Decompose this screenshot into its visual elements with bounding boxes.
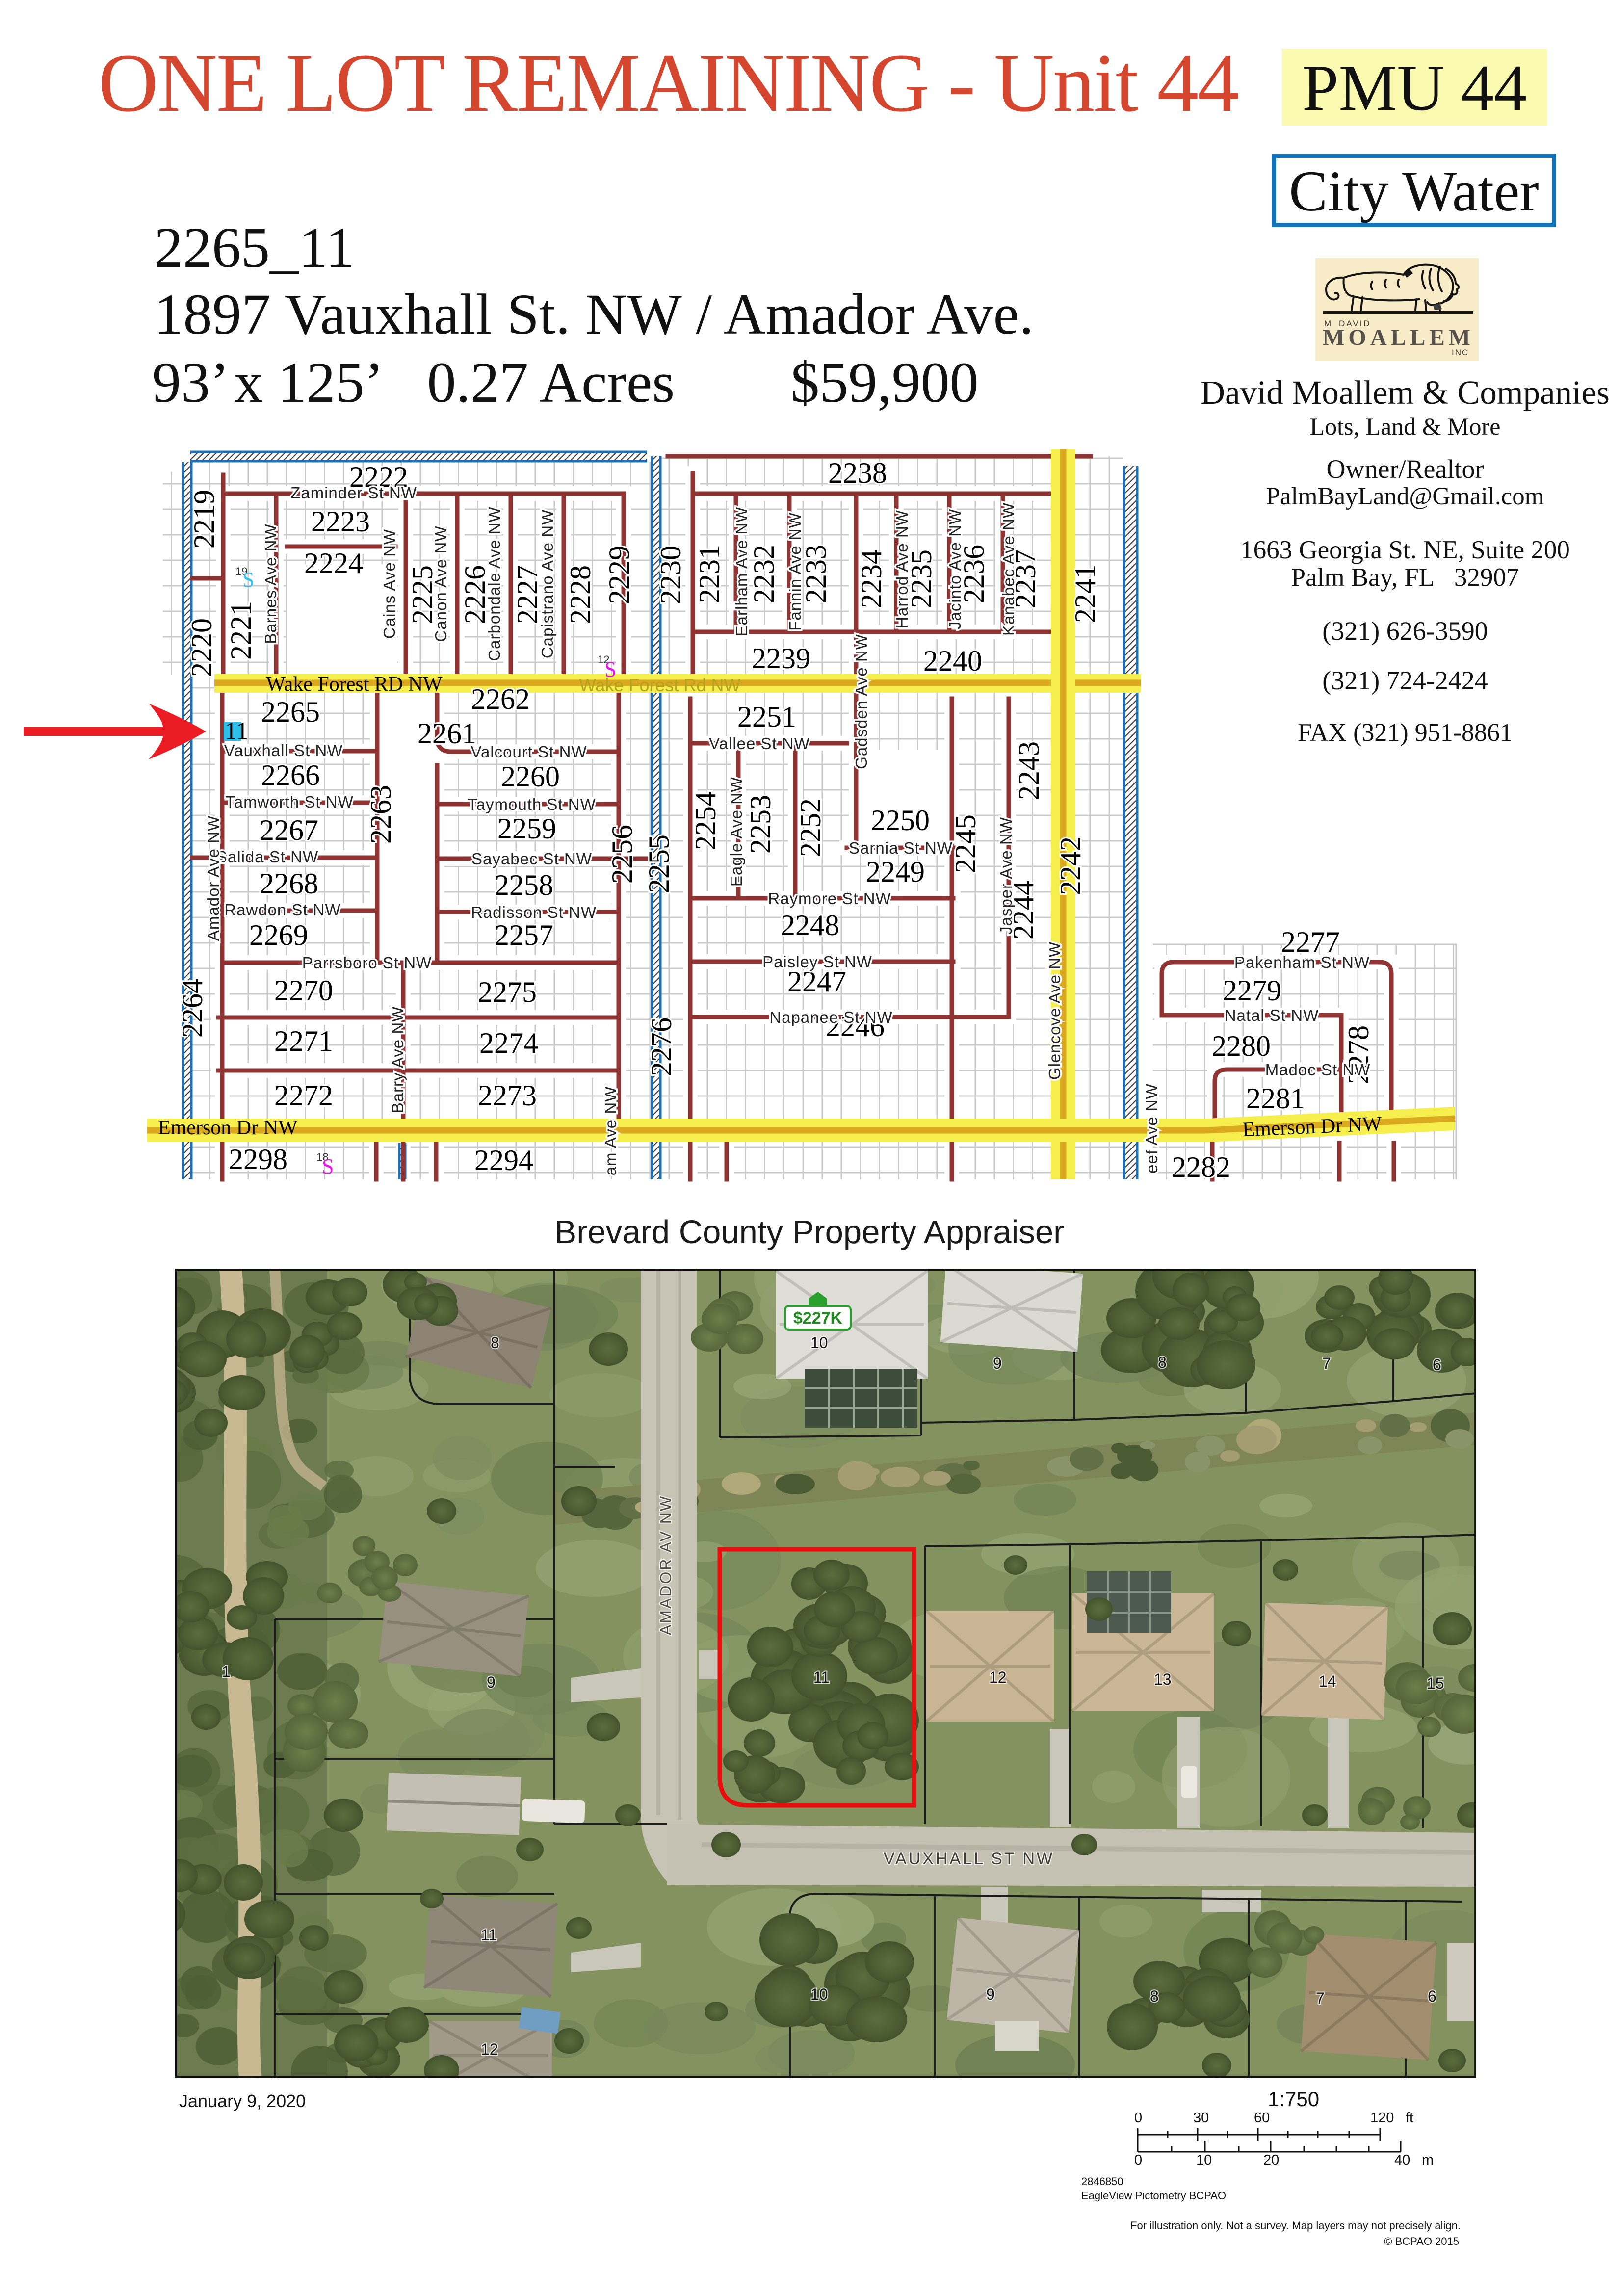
svg-text:9: 9 (487, 1673, 496, 1691)
svg-text:Napanee St NW: Napanee St NW (769, 1008, 892, 1026)
svg-text:2248: 2248 (781, 909, 839, 941)
svg-text:2259: 2259 (497, 812, 556, 845)
svg-text:Earlham Ave NW: Earlham Ave NW (732, 507, 751, 637)
svg-text:2238: 2238 (828, 457, 887, 489)
svg-text:7: 7 (1316, 1989, 1325, 2007)
svg-text:2219: 2219 (188, 490, 220, 548)
svg-text:Zaminder St NW: Zaminder St NW (290, 484, 417, 502)
svg-text:S: S (604, 657, 616, 681)
svg-text:Vauxhall St NW: Vauxhall St NW (224, 741, 343, 759)
svg-text:2264: 2264 (176, 979, 209, 1038)
svg-text:Raymore St NW: Raymore St NW (768, 889, 891, 908)
svg-text:Cains Ave NW: Cains Ave NW (380, 529, 398, 639)
svg-text:6: 6 (1433, 1356, 1441, 1374)
svg-text:1: 1 (222, 1663, 231, 1680)
svg-text:Tamworth St NW: Tamworth St NW (225, 793, 354, 811)
svg-text:m: m (1422, 2152, 1434, 2168)
svg-text:Gadsden Ave NW: Gadsden Ave NW (852, 634, 870, 769)
svg-text:2272: 2272 (274, 1079, 333, 1112)
svg-text:2279: 2279 (1223, 974, 1281, 1007)
svg-text:2250: 2250 (871, 804, 930, 836)
svg-text:2268: 2268 (260, 867, 318, 900)
svg-text:2269: 2269 (249, 919, 308, 951)
svg-text:2245: 2245 (949, 814, 982, 873)
svg-text:2273: 2273 (478, 1079, 537, 1112)
svg-text:2228: 2228 (564, 565, 597, 624)
svg-text:AMADOR AV NW: AMADOR AV NW (657, 1495, 675, 1635)
svg-text:MOALLEM: MOALLEM (1323, 325, 1471, 350)
svg-text:Vallee St NW: Vallee St NW (709, 734, 810, 753)
svg-text:2230: 2230 (654, 546, 687, 604)
svg-text:Paisley St NW: Paisley St NW (762, 953, 872, 971)
svg-text:2258: 2258 (495, 869, 553, 901)
svg-text:7: 7 (1322, 1355, 1331, 1372)
svg-text:10: 10 (810, 1985, 828, 2003)
svg-text:Fannin Ave NW: Fannin Ave NW (786, 512, 804, 631)
svg-text:2239: 2239 (752, 642, 810, 675)
svg-text:$227K: $227K (793, 1309, 843, 1328)
svg-text:2233: 2233 (800, 545, 832, 603)
svg-text:Emerson Dr NW: Emerson Dr NW (158, 1117, 298, 1139)
svg-text:Sarnia St NW: Sarnia St NW (849, 839, 953, 857)
svg-text:2243: 2243 (1013, 741, 1045, 800)
svg-text:Kanabec Ave NW: Kanabec Ave NW (999, 502, 1018, 636)
svg-text:2220: 2220 (185, 618, 218, 677)
svg-text:Canon Ave NW: Canon Ave NW (432, 525, 450, 642)
svg-text:S: S (242, 568, 254, 592)
svg-text:Taymouth St NW: Taymouth St NW (468, 795, 596, 813)
svg-text:Parrsboro St NW: Parrsboro St NW (302, 954, 432, 972)
svg-text:Radisson St NW: Radisson St NW (471, 903, 597, 921)
svg-text:INC: INC (1452, 348, 1469, 357)
svg-text:2298: 2298 (229, 1143, 287, 1175)
svg-text:2262: 2262 (471, 683, 530, 715)
svg-text:11: 11 (225, 717, 248, 744)
svg-text:Sayabec St NW: Sayabec St NW (471, 850, 592, 868)
svg-text:2275: 2275 (478, 976, 537, 1008)
svg-text:Jasper Ave NW: Jasper Ave NW (997, 817, 1015, 935)
svg-text:S: S (322, 1154, 334, 1178)
svg-text:60: 60 (1254, 2110, 1270, 2126)
svg-text:120: 120 (1370, 2110, 1394, 2126)
svg-text:2270: 2270 (274, 974, 333, 1007)
svg-text:2274: 2274 (479, 1027, 538, 1059)
svg-text:12: 12 (481, 2040, 498, 2058)
svg-text:11: 11 (481, 1926, 497, 1944)
svg-text:Jacinto Ave NW: Jacinto Ave NW (946, 509, 964, 629)
svg-text:0: 0 (1134, 2110, 1142, 2126)
svg-text:2240: 2240 (923, 645, 982, 677)
svg-text:2234: 2234 (855, 549, 888, 608)
svg-text:Capistrano Ave NW: Capistrano Ave NW (538, 509, 556, 658)
svg-text:Eagle Ave NW: Eagle Ave NW (727, 777, 745, 887)
svg-text:Madoc St NW: Madoc St NW (1265, 1061, 1371, 1079)
svg-text:Salida St NW: Salida St NW (216, 848, 318, 866)
svg-text:2265: 2265 (261, 696, 320, 728)
svg-text:8: 8 (1158, 1354, 1167, 1371)
svg-text:14: 14 (1319, 1672, 1336, 1690)
svg-text:Natal St NW: Natal St NW (1225, 1006, 1319, 1024)
svg-text:Amador Ave NW: Amador Ave NW (204, 815, 222, 941)
svg-text:2224: 2224 (304, 547, 363, 579)
svg-text:2249: 2249 (866, 856, 925, 888)
svg-text:6: 6 (1428, 1987, 1436, 2005)
svg-text:2261: 2261 (418, 717, 476, 750)
svg-text:2276: 2276 (645, 1018, 678, 1076)
svg-text:13: 13 (1154, 1670, 1172, 1688)
svg-text:2252: 2252 (794, 798, 827, 857)
svg-text:40: 40 (1394, 2152, 1410, 2168)
svg-text:11: 11 (813, 1669, 830, 1686)
svg-text:8: 8 (1150, 1987, 1159, 2005)
svg-text:2263: 2263 (365, 785, 397, 844)
svg-text:2231: 2231 (693, 545, 726, 603)
svg-text:8: 8 (491, 1334, 499, 1352)
svg-text:2251: 2251 (737, 701, 796, 733)
svg-text:10: 10 (810, 1334, 828, 1352)
svg-text:Rawdon St NW: Rawdon St NW (224, 901, 341, 919)
svg-text:10: 10 (1196, 2152, 1212, 2168)
svg-text:9: 9 (993, 1355, 1002, 1372)
svg-text:9: 9 (986, 1985, 995, 2003)
svg-text:2254: 2254 (689, 791, 722, 850)
svg-text:2266: 2266 (261, 759, 320, 791)
svg-text:2267: 2267 (260, 814, 318, 846)
svg-text:Wake Forest Rd NW: Wake Forest Rd NW (579, 675, 741, 695)
svg-text:Barry Ave NW: Barry Ave NW (389, 1006, 407, 1114)
svg-text:Glencove Ave NW: Glencove Ave NW (1045, 941, 1064, 1080)
svg-text:20: 20 (1263, 2152, 1279, 2168)
svg-text:30: 30 (1193, 2110, 1209, 2126)
svg-text:2253: 2253 (744, 795, 777, 854)
svg-text:Valcourt St NW: Valcourt St NW (470, 743, 587, 761)
svg-text:2241: 2241 (1069, 564, 1101, 623)
svg-text:eef Ave NW: eef Ave NW (1143, 1083, 1161, 1174)
svg-text:2260: 2260 (501, 760, 560, 793)
svg-text:am Ave NW: am Ave NW (601, 1086, 620, 1176)
svg-text:2221: 2221 (225, 601, 257, 660)
svg-text:Carbondale Ave NW: Carbondale Ave NW (485, 506, 503, 661)
svg-text:12: 12 (989, 1669, 1007, 1686)
svg-text:Pakenham St NW: Pakenham St NW (1234, 953, 1370, 971)
svg-text:2256: 2256 (606, 825, 638, 884)
svg-text:2281: 2281 (1246, 1082, 1305, 1115)
svg-text:2271: 2271 (274, 1025, 333, 1057)
svg-text:15: 15 (1427, 1674, 1444, 1692)
svg-text:Wake Forest RD NW: Wake Forest RD NW (266, 673, 443, 696)
svg-text:2294: 2294 (474, 1144, 533, 1176)
svg-text:0: 0 (1134, 2152, 1142, 2168)
svg-text:2257: 2257 (495, 919, 553, 951)
svg-text:Harrod Ave NW: Harrod Ave NW (893, 510, 911, 628)
svg-text:2255: 2255 (643, 835, 675, 893)
svg-text:2223: 2223 (311, 505, 370, 538)
svg-text:2229: 2229 (603, 546, 635, 604)
svg-text:Barnes Ave NW: Barnes Ave NW (261, 523, 280, 644)
svg-text:VAUXHALL ST NW: VAUXHALL ST NW (884, 1850, 1054, 1868)
svg-text:2232: 2232 (748, 545, 780, 603)
svg-text:ft: ft (1406, 2110, 1413, 2126)
svg-text:2282: 2282 (1172, 1151, 1230, 1183)
svg-text:2280: 2280 (1212, 1030, 1271, 1062)
svg-text:2242: 2242 (1054, 836, 1087, 895)
